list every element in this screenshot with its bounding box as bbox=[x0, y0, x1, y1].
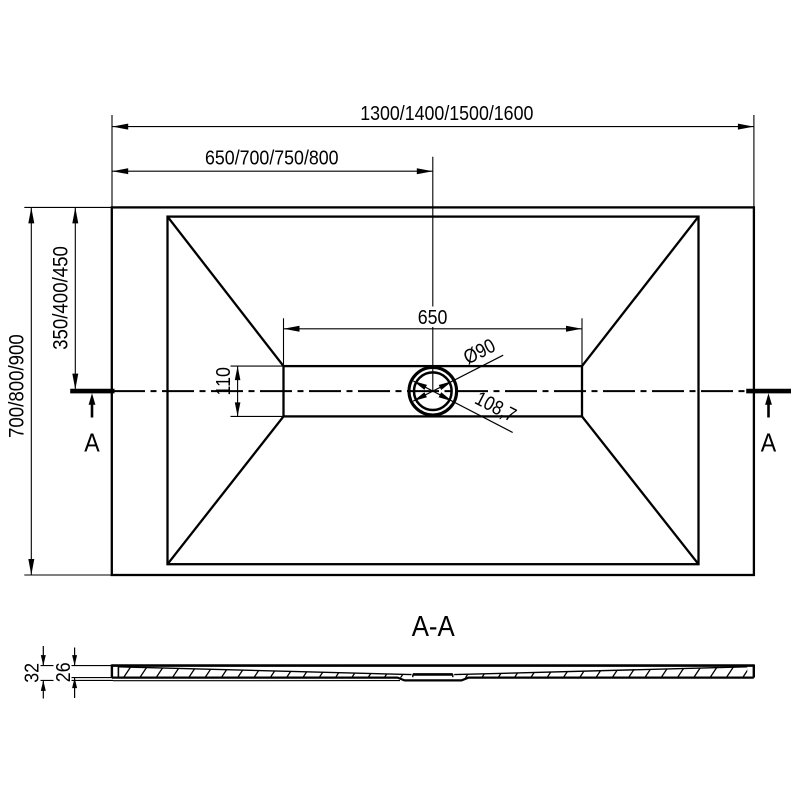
svg-text:A-A: A-A bbox=[412, 610, 456, 643]
svg-text:32: 32 bbox=[22, 663, 44, 683]
svg-text:650/700/750/800: 650/700/750/800 bbox=[205, 147, 339, 169]
svg-text:1300/1400/1500/1600: 1300/1400/1500/1600 bbox=[360, 103, 533, 125]
svg-text:26: 26 bbox=[53, 662, 75, 682]
svg-text:700/800/900: 700/800/900 bbox=[6, 334, 29, 438]
svg-text:A: A bbox=[84, 429, 100, 458]
svg-text:A: A bbox=[761, 429, 777, 458]
svg-text:650: 650 bbox=[418, 307, 448, 329]
svg-text:110: 110 bbox=[213, 367, 235, 395]
svg-text:350/400/450: 350/400/450 bbox=[49, 246, 72, 350]
